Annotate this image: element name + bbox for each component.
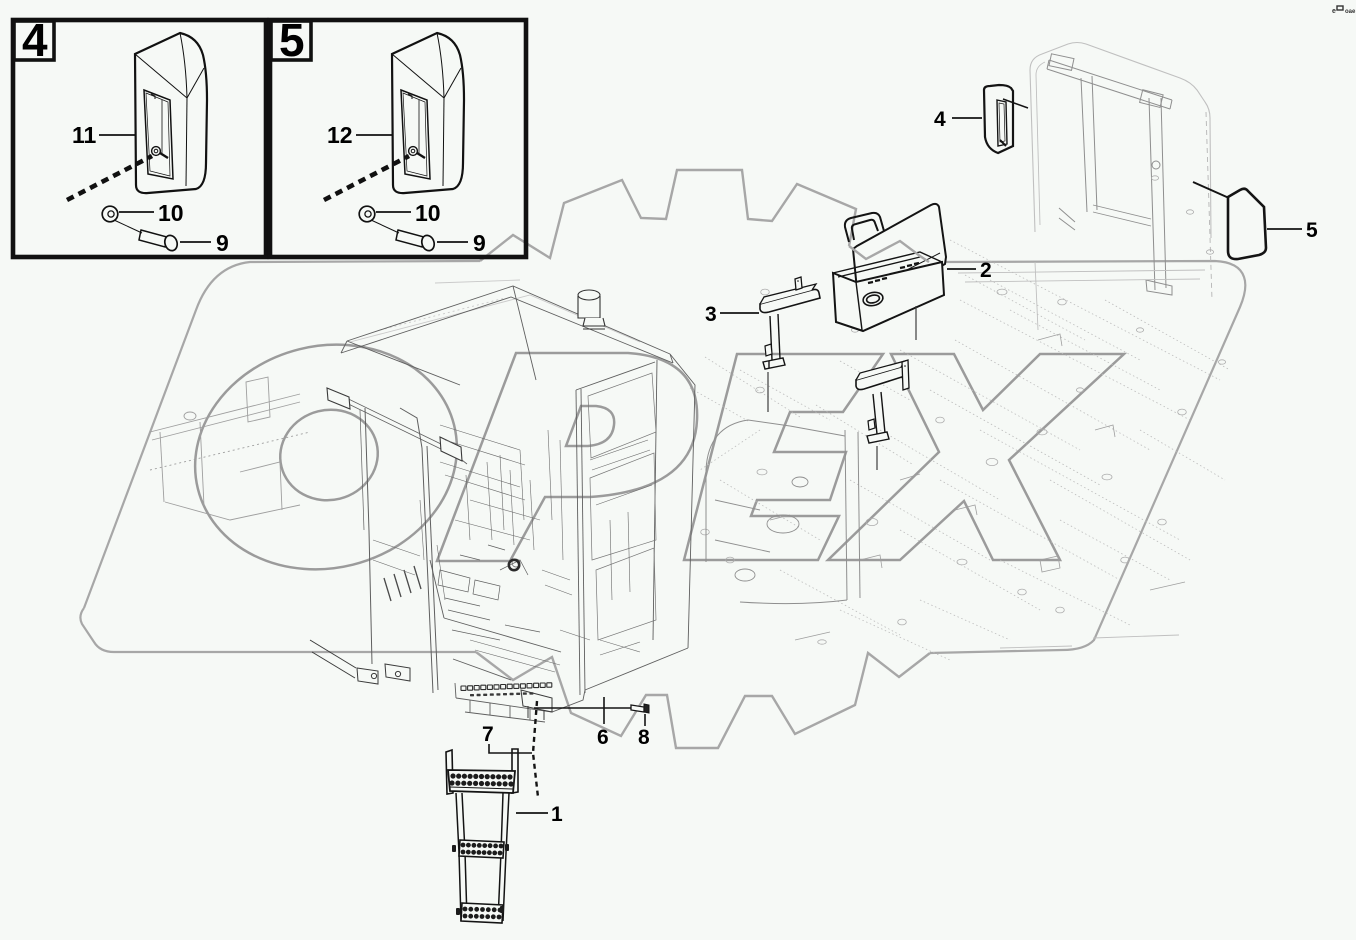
svg-text:e: e <box>1332 8 1336 15</box>
svg-text:oae: oae <box>1345 9 1356 15</box>
svg-text:7: 7 <box>482 723 494 746</box>
svg-text:4: 4 <box>934 108 946 131</box>
svg-text:10: 10 <box>415 200 441 226</box>
svg-text:11: 11 <box>72 122 97 148</box>
svg-text:12: 12 <box>327 122 353 148</box>
svg-text:2: 2 <box>980 259 992 282</box>
svg-text:6: 6 <box>597 726 609 749</box>
svg-text:9: 9 <box>473 230 486 256</box>
svg-text:5: 5 <box>1306 219 1318 242</box>
svg-text:3: 3 <box>705 303 717 326</box>
svg-text:10: 10 <box>158 200 184 226</box>
svg-text:5: 5 <box>279 14 305 66</box>
svg-text:1: 1 <box>551 803 563 826</box>
svg-text:4: 4 <box>22 14 48 66</box>
svg-text:8: 8 <box>638 726 650 749</box>
svg-text:9: 9 <box>216 230 229 256</box>
